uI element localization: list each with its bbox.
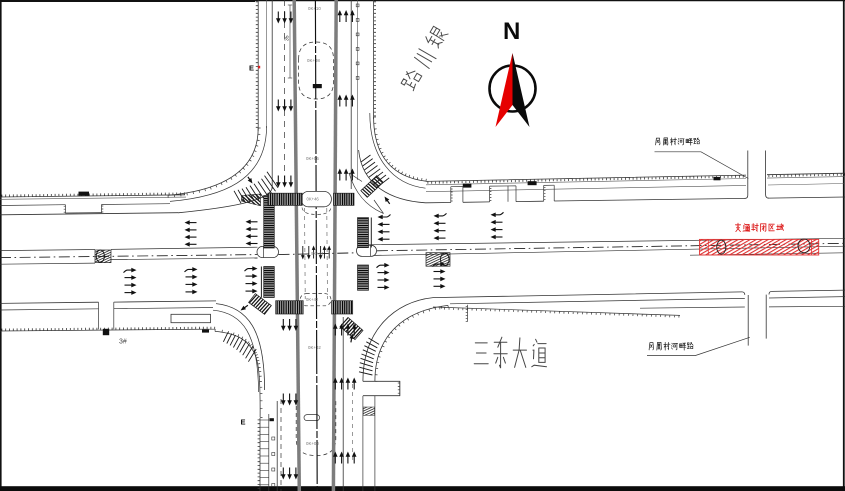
svg-text:0K+02: 0K+02 <box>308 345 321 350</box>
svg-text:E: E <box>241 418 246 427</box>
svg-text:N: N <box>503 18 520 45</box>
svg-text:0K+42: 0K+42 <box>306 297 319 302</box>
svg-text:E: E <box>249 64 254 73</box>
svg-text:0K+06: 0K+06 <box>306 156 319 161</box>
svg-text:0K+08: 0K+08 <box>307 58 320 63</box>
svg-text:35: 35 <box>285 35 291 41</box>
svg-text:3#: 3# <box>119 339 127 346</box>
svg-text:0K+46: 0K+46 <box>307 197 320 202</box>
svg-text:0K+10: 0K+10 <box>308 6 321 11</box>
svg-text:0K+44: 0K+44 <box>311 251 324 256</box>
